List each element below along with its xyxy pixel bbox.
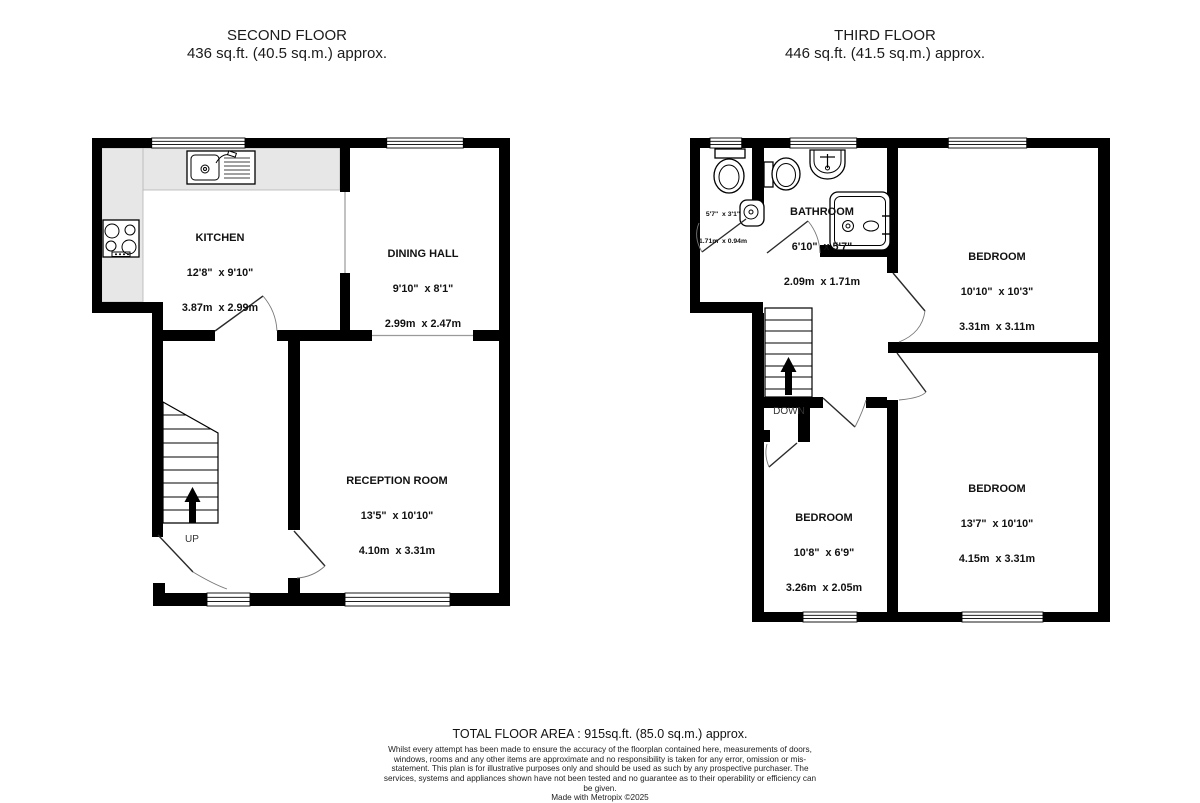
room-label-kitchen: KITCHEN 12'8" x 9'10" 3.87m x 2.99m	[182, 209, 258, 339]
room-label-reception: RECEPTION ROOM 13'5" x 10'10" 4.10m x 3.…	[346, 452, 447, 582]
staircase	[765, 308, 812, 397]
floor-name: THIRD FLOOR	[685, 27, 1085, 45]
window	[710, 138, 742, 148]
second-floor-title: SECOND FLOOR 436 sq.ft. (40.5 sq.m.) app…	[87, 27, 487, 63]
window	[790, 138, 857, 148]
floor-area: 446 sq.ft. (41.5 sq.m.) approx.	[685, 45, 1085, 63]
floor-name: SECOND FLOOR	[87, 27, 487, 45]
second-floor-plan	[85, 130, 515, 615]
disclaimer-text: Whilst every attempt has been made to en…	[380, 745, 820, 794]
total-floor-area: TOTAL FLOOR AREA : 915sq.ft. (85.0 sq.m.…	[0, 727, 1200, 741]
room-label-dining-hall: DINING HALL 9'10" x 8'1" 2.99m x 2.47m	[385, 225, 461, 355]
room-label-bedroom-right: BEDROOM 13'7" x 10'10" 4.15m x 3.31m	[959, 460, 1035, 590]
third-floor-plan	[685, 130, 1115, 630]
door-swing	[294, 531, 325, 578]
room-label-bedroom-left: BEDROOM 10'8" x 6'9" 3.26m x 2.05m	[786, 489, 862, 619]
third-floor-title: THIRD FLOOR 446 sq.ft. (41.5 sq.m.) appr…	[685, 27, 1085, 63]
window	[345, 593, 450, 606]
room-label-bathroom: BATHROOM 6'10" x 5'7" 2.09m x 1.71m	[784, 183, 860, 313]
door-swing	[897, 353, 926, 400]
window	[962, 612, 1043, 622]
toilet-icon	[714, 149, 745, 193]
floor-area: 436 sq.ft. (40.5 sq.m.) approx.	[87, 45, 487, 63]
staircase	[163, 402, 218, 523]
room-label-bedroom-top: BEDROOM 10'10" x 10'3" 3.31m x 3.11m	[959, 228, 1035, 358]
door-swing	[766, 443, 797, 467]
wash-basin-icon	[810, 150, 845, 179]
window	[152, 138, 245, 148]
hob-icon	[103, 220, 139, 257]
window	[387, 138, 464, 148]
window	[207, 593, 250, 606]
floorplan-canvas: SECOND FLOOR 436 sq.ft. (40.5 sq.m.) app…	[0, 0, 1200, 803]
down-label: DOWN	[773, 406, 805, 417]
sink-icon	[187, 151, 255, 184]
window	[948, 138, 1026, 148]
metropix-credit: Made with Metropix ©2025	[0, 793, 1200, 802]
up-label: UP	[185, 534, 199, 545]
door-swing	[823, 398, 866, 427]
door-swing	[893, 273, 925, 342]
room-label-wc: 5'7" x 3'1" 1.71m x 0.94m	[699, 192, 747, 264]
